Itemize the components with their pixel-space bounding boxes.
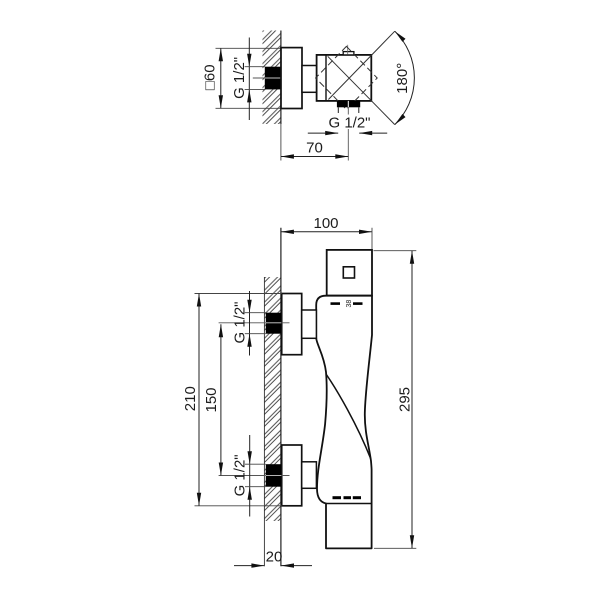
svg-text:G 1/2": G 1/2" (231, 57, 248, 99)
svg-text:G 1/2": G 1/2" (328, 114, 370, 131)
svg-text:295: 295 (397, 387, 414, 412)
svg-text:38: 38 (346, 300, 353, 308)
svg-text:20: 20 (266, 549, 283, 566)
svg-text:G 1/2": G 1/2" (231, 301, 248, 343)
svg-text:150: 150 (203, 387, 220, 412)
svg-text:70: 70 (306, 140, 323, 157)
svg-text:G 1/2": G 1/2" (232, 454, 249, 496)
svg-text:□60: □60 (202, 64, 219, 90)
svg-text:100: 100 (313, 215, 338, 232)
svg-text:180°: 180° (394, 63, 411, 94)
svg-text:210: 210 (182, 386, 199, 411)
